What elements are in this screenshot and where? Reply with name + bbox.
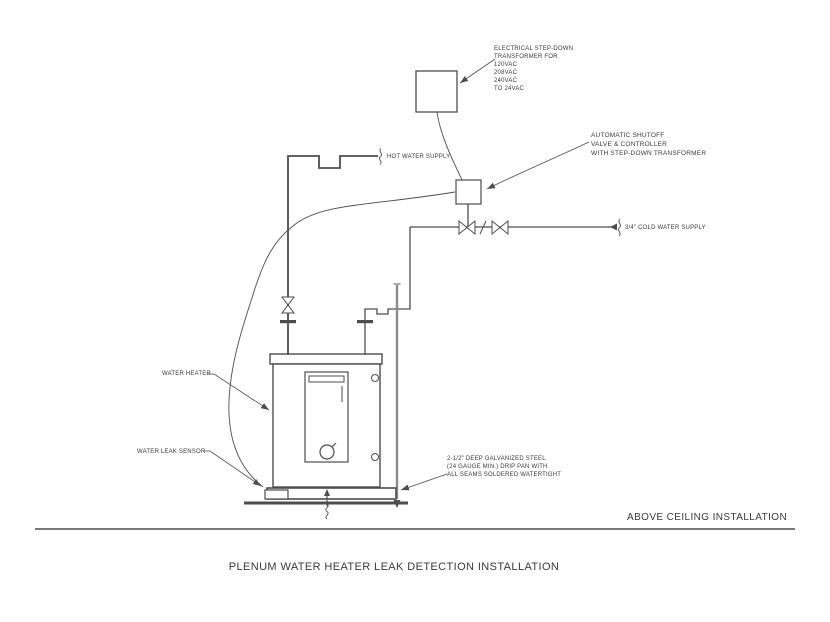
water-leak-sensor — [265, 490, 288, 499]
cold-water-supply-label: 3/4" COLD WATER SUPPLY — [625, 224, 706, 232]
flow-arrow-icon — [610, 224, 617, 231]
diagram-canvas: ELECTRICAL STEP-DOWN TRANSFORMER FOR 120… — [0, 0, 830, 622]
leader-transformer — [460, 59, 495, 83]
pipe-break-icon — [326, 504, 328, 519]
pipe-break-icon — [618, 219, 620, 236]
leader-shutoff — [487, 142, 589, 189]
hot-water-supply-label: HOT WATER SUPPLY — [387, 153, 450, 161]
leader-leak-sensor — [204, 451, 261, 486]
leader-drip-pan — [401, 474, 447, 490]
pipe-break-icon — [379, 149, 381, 165]
page-title: PLENUM WATER HEATER LEAK DETECTION INSTA… — [229, 561, 560, 573]
hot-water-pipe — [280, 149, 382, 356]
diagram-linework — [0, 0, 830, 622]
pipe-union-icon — [357, 320, 373, 323]
transformer-wire — [437, 112, 462, 180]
transformer-note: ELECTRICAL STEP-DOWN TRANSFORMER FOR 120… — [494, 45, 573, 93]
leader-water-heater — [207, 374, 269, 410]
water-heater-label: WATER HEATER — [162, 370, 211, 378]
controller-box — [456, 180, 481, 204]
transformer-box — [416, 71, 457, 112]
view-label: ABOVE CEILING INSTALLATION — [627, 512, 787, 523]
tank-control-panel — [305, 372, 348, 462]
pipe-union-icon — [280, 320, 296, 323]
hot-water-valve-icon — [282, 297, 294, 313]
shutoff-valve-icon — [459, 221, 475, 234]
water-leak-sensor-label: WATER LEAK SENSOR — [137, 448, 205, 456]
drip-pan-note: 2-1/2" DEEP GALVANIZED STEEL (24 GAUGE M… — [447, 455, 561, 479]
water-heater-tank — [270, 354, 382, 487]
shutoff-note: AUTOMATIC SHUTOFF VALVE & CONTROLLER WIT… — [591, 131, 706, 158]
gate-valve-icon — [492, 221, 508, 234]
tp-discharge-pipe — [394, 284, 401, 508]
